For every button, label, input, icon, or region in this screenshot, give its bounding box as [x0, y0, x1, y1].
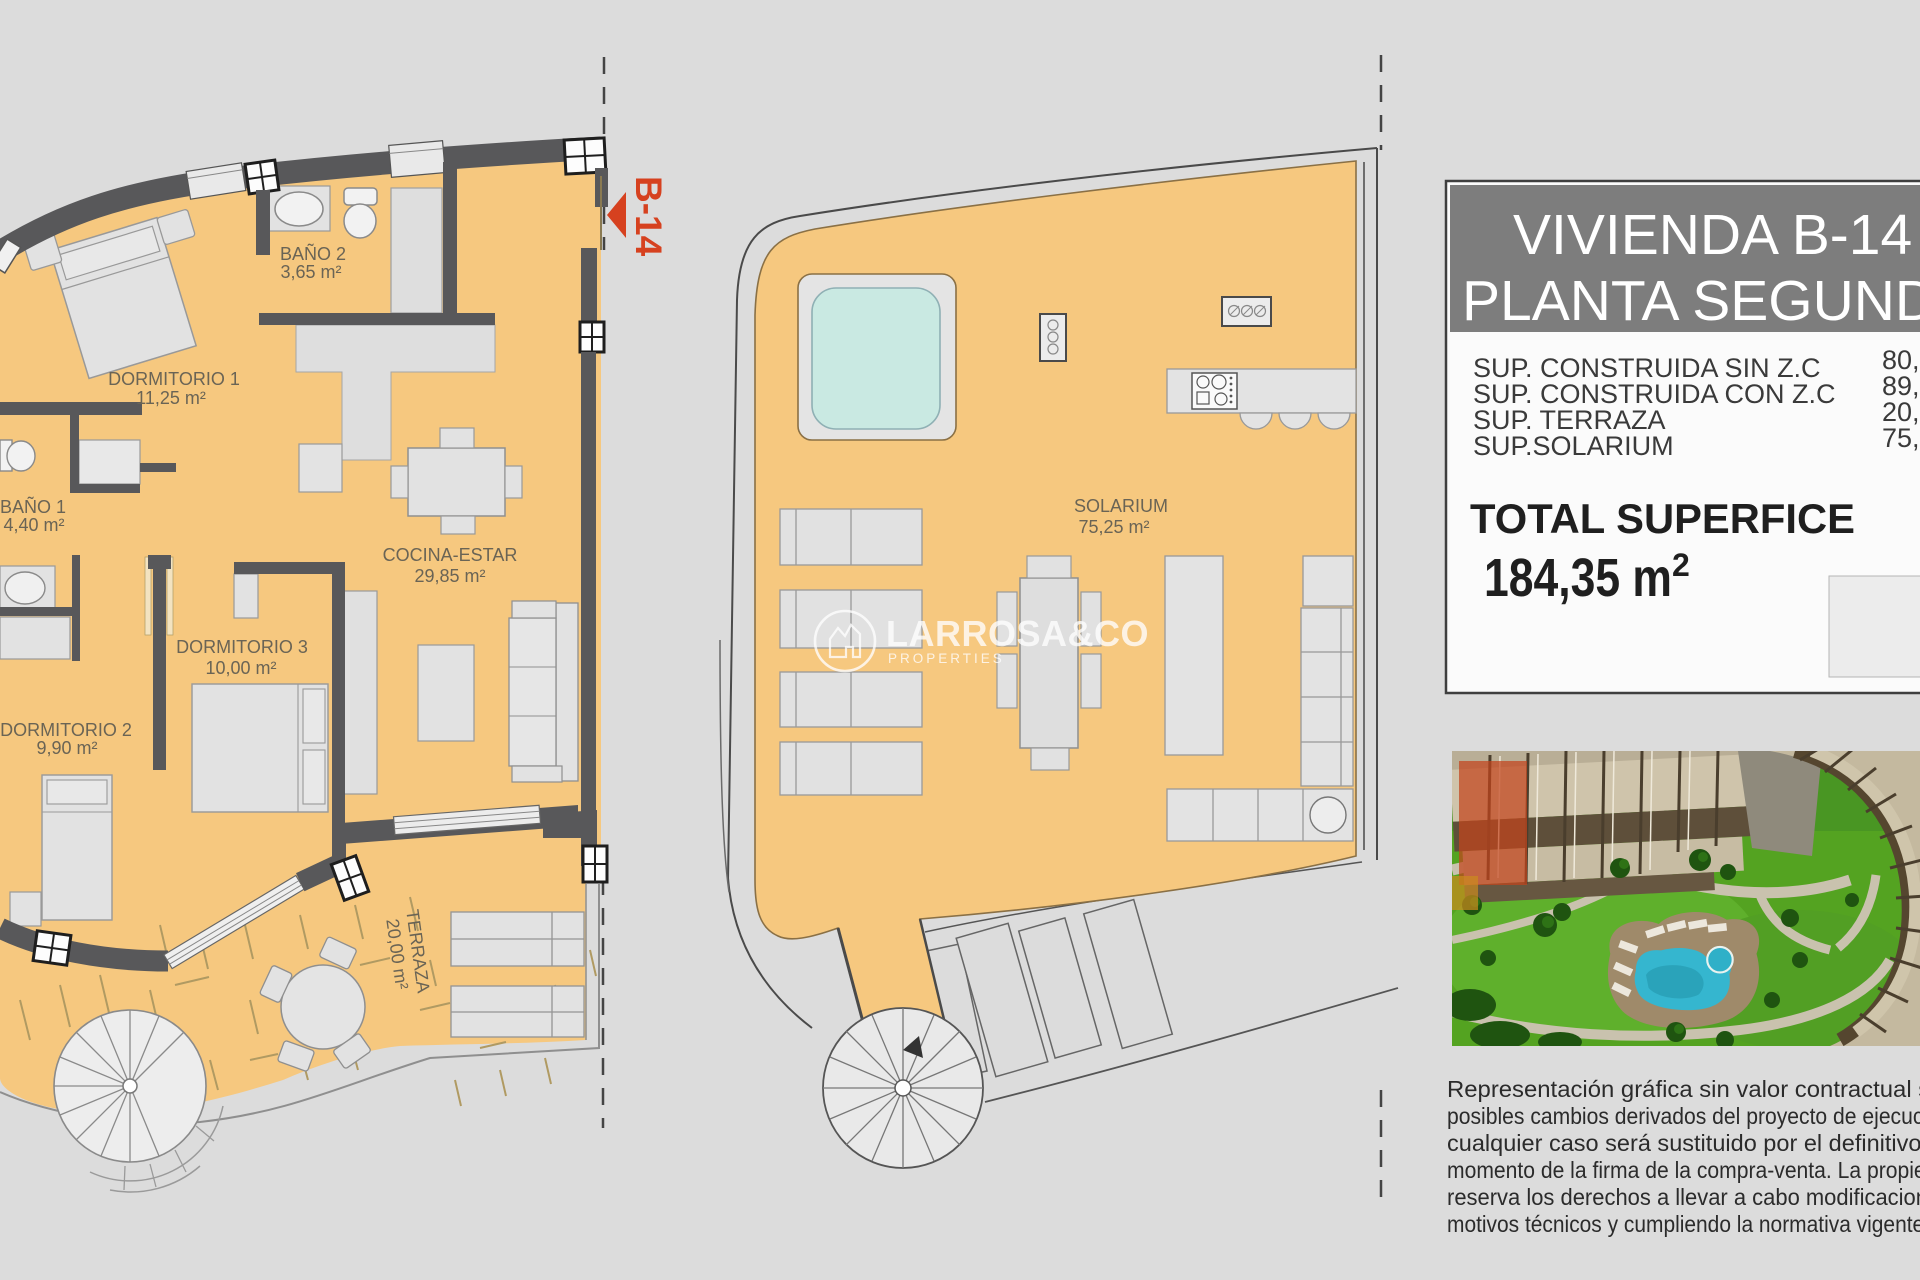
- svg-text:4,40 m²: 4,40 m²: [3, 515, 64, 535]
- svg-text:TOTAL SUPERFICE: TOTAL SUPERFICE: [1470, 495, 1855, 542]
- svg-text:75,25 m²: 75,25 m²: [1078, 517, 1149, 537]
- svg-text:29,85 m²: 29,85 m²: [414, 566, 485, 586]
- svg-text:posibles cambios derivados del: posibles cambios derivados del proyecto …: [1447, 1103, 1920, 1129]
- svg-text:BAÑO 2: BAÑO 2: [280, 243, 346, 264]
- svg-text:9,90 m²: 9,90 m²: [36, 738, 97, 758]
- svg-text:motivos técnicos y cumpliendo: motivos técnicos y cumpliendo la normati…: [1447, 1211, 1920, 1237]
- svg-text:VIVIENDA B-14: VIVIENDA B-14: [1513, 203, 1912, 267]
- svg-text:184,35 m2: 184,35 m2: [1484, 547, 1690, 608]
- svg-text:10,00 m²: 10,00 m²: [205, 658, 276, 678]
- svg-text:PROPERTIES: PROPERTIES: [888, 651, 1005, 666]
- svg-text:75,2: 75,2: [1882, 423, 1920, 453]
- svg-text:3,65 m²: 3,65 m²: [280, 262, 341, 282]
- svg-text:LARROSA&CO: LARROSA&CO: [886, 613, 1149, 654]
- svg-text:DORMITORIO 1: DORMITORIO 1: [108, 369, 240, 389]
- svg-text:reserva los derechos a llevar: reserva los derechos a llevar a cabo mod…: [1447, 1184, 1920, 1210]
- svg-text:PLANTA SEGUNDA: PLANTA SEGUNDA: [1462, 269, 1920, 333]
- svg-text:DORMITORIO 2: DORMITORIO 2: [0, 720, 132, 740]
- svg-text:DORMITORIO 3: DORMITORIO 3: [176, 637, 308, 657]
- svg-text:SUP.SOLARIUM: SUP.SOLARIUM: [1473, 431, 1674, 461]
- svg-text:B-14: B-14: [628, 176, 669, 257]
- svg-text:SOLARIUM: SOLARIUM: [1074, 496, 1168, 516]
- svg-text:momento de la firma de la comp: momento de la firma de la compra-venta. …: [1447, 1157, 1920, 1183]
- svg-text:BAÑO 1: BAÑO 1: [0, 496, 66, 517]
- svg-text:COCINA-ESTAR: COCINA-ESTAR: [383, 545, 518, 565]
- svg-text:11,25 m²: 11,25 m²: [136, 388, 206, 408]
- svg-text:Representación gráfica sin val: Representación gráfica sin valor contrac…: [1447, 1076, 1920, 1102]
- svg-text:cualquier caso será sustituido: cualquier caso será sustituido por el de…: [1447, 1130, 1920, 1156]
